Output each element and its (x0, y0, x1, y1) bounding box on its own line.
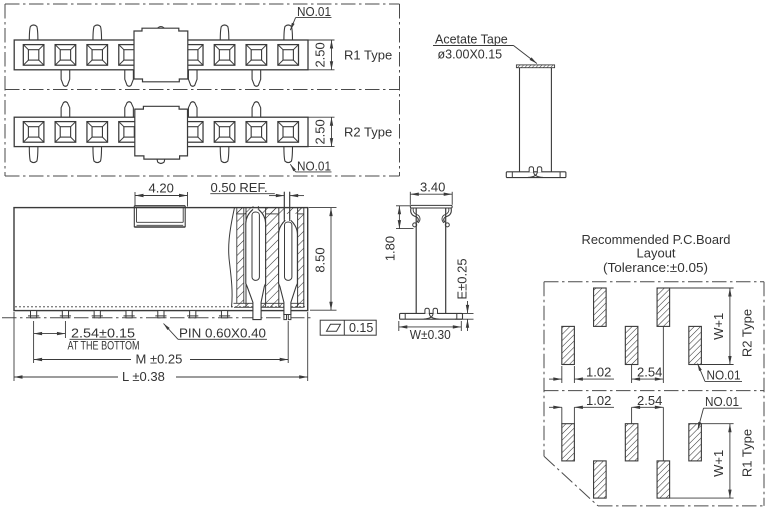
svg-text:2.54: 2.54 (637, 365, 662, 380)
svg-text:ø3.00X0.15: ø3.00X0.15 (438, 48, 503, 62)
svg-text:Layout: Layout (637, 246, 676, 261)
svg-text:W+1: W+1 (711, 450, 726, 477)
svg-text:R1 Type: R1 Type (344, 48, 392, 63)
svg-text:L ±0.38: L ±0.38 (122, 369, 165, 384)
svg-text:M ±0.25: M ±0.25 (136, 352, 183, 367)
svg-text:W+1: W+1 (711, 313, 726, 340)
svg-text:R1 Type: R1 Type (740, 429, 755, 477)
svg-text:1.02: 1.02 (586, 365, 611, 380)
svg-text:1.02: 1.02 (586, 393, 611, 408)
svg-text:4.20: 4.20 (149, 180, 174, 195)
svg-text:0.15: 0.15 (349, 321, 373, 335)
svg-text:E±0.25: E±0.25 (455, 258, 470, 299)
svg-text:2.50: 2.50 (313, 119, 328, 144)
svg-text:AT THE BOTTOM: AT THE BOTTOM (68, 338, 140, 352)
svg-text:2.50: 2.50 (313, 42, 328, 67)
svg-text:R2 Type: R2 Type (740, 309, 755, 357)
svg-text:0.50 REF.: 0.50 REF. (211, 180, 268, 195)
svg-text:NO.01: NO.01 (705, 394, 739, 409)
svg-text:1.80: 1.80 (383, 236, 398, 261)
svg-text:2.54: 2.54 (637, 393, 662, 408)
svg-text:(Tolerance:±0.05): (Tolerance:±0.05) (603, 260, 708, 275)
svg-text:Acetate Tape: Acetate Tape (435, 33, 508, 47)
svg-text:PIN 0.60X0.40: PIN 0.60X0.40 (179, 325, 266, 340)
svg-text:3.40: 3.40 (420, 180, 445, 195)
svg-text:NO.01: NO.01 (297, 4, 331, 19)
svg-text:R2 Type: R2 Type (344, 125, 392, 140)
svg-text:NO.01: NO.01 (297, 158, 331, 173)
svg-text:NO.01: NO.01 (707, 368, 741, 383)
svg-text:8.50: 8.50 (313, 247, 328, 272)
svg-text:W±0.30: W±0.30 (410, 327, 451, 342)
